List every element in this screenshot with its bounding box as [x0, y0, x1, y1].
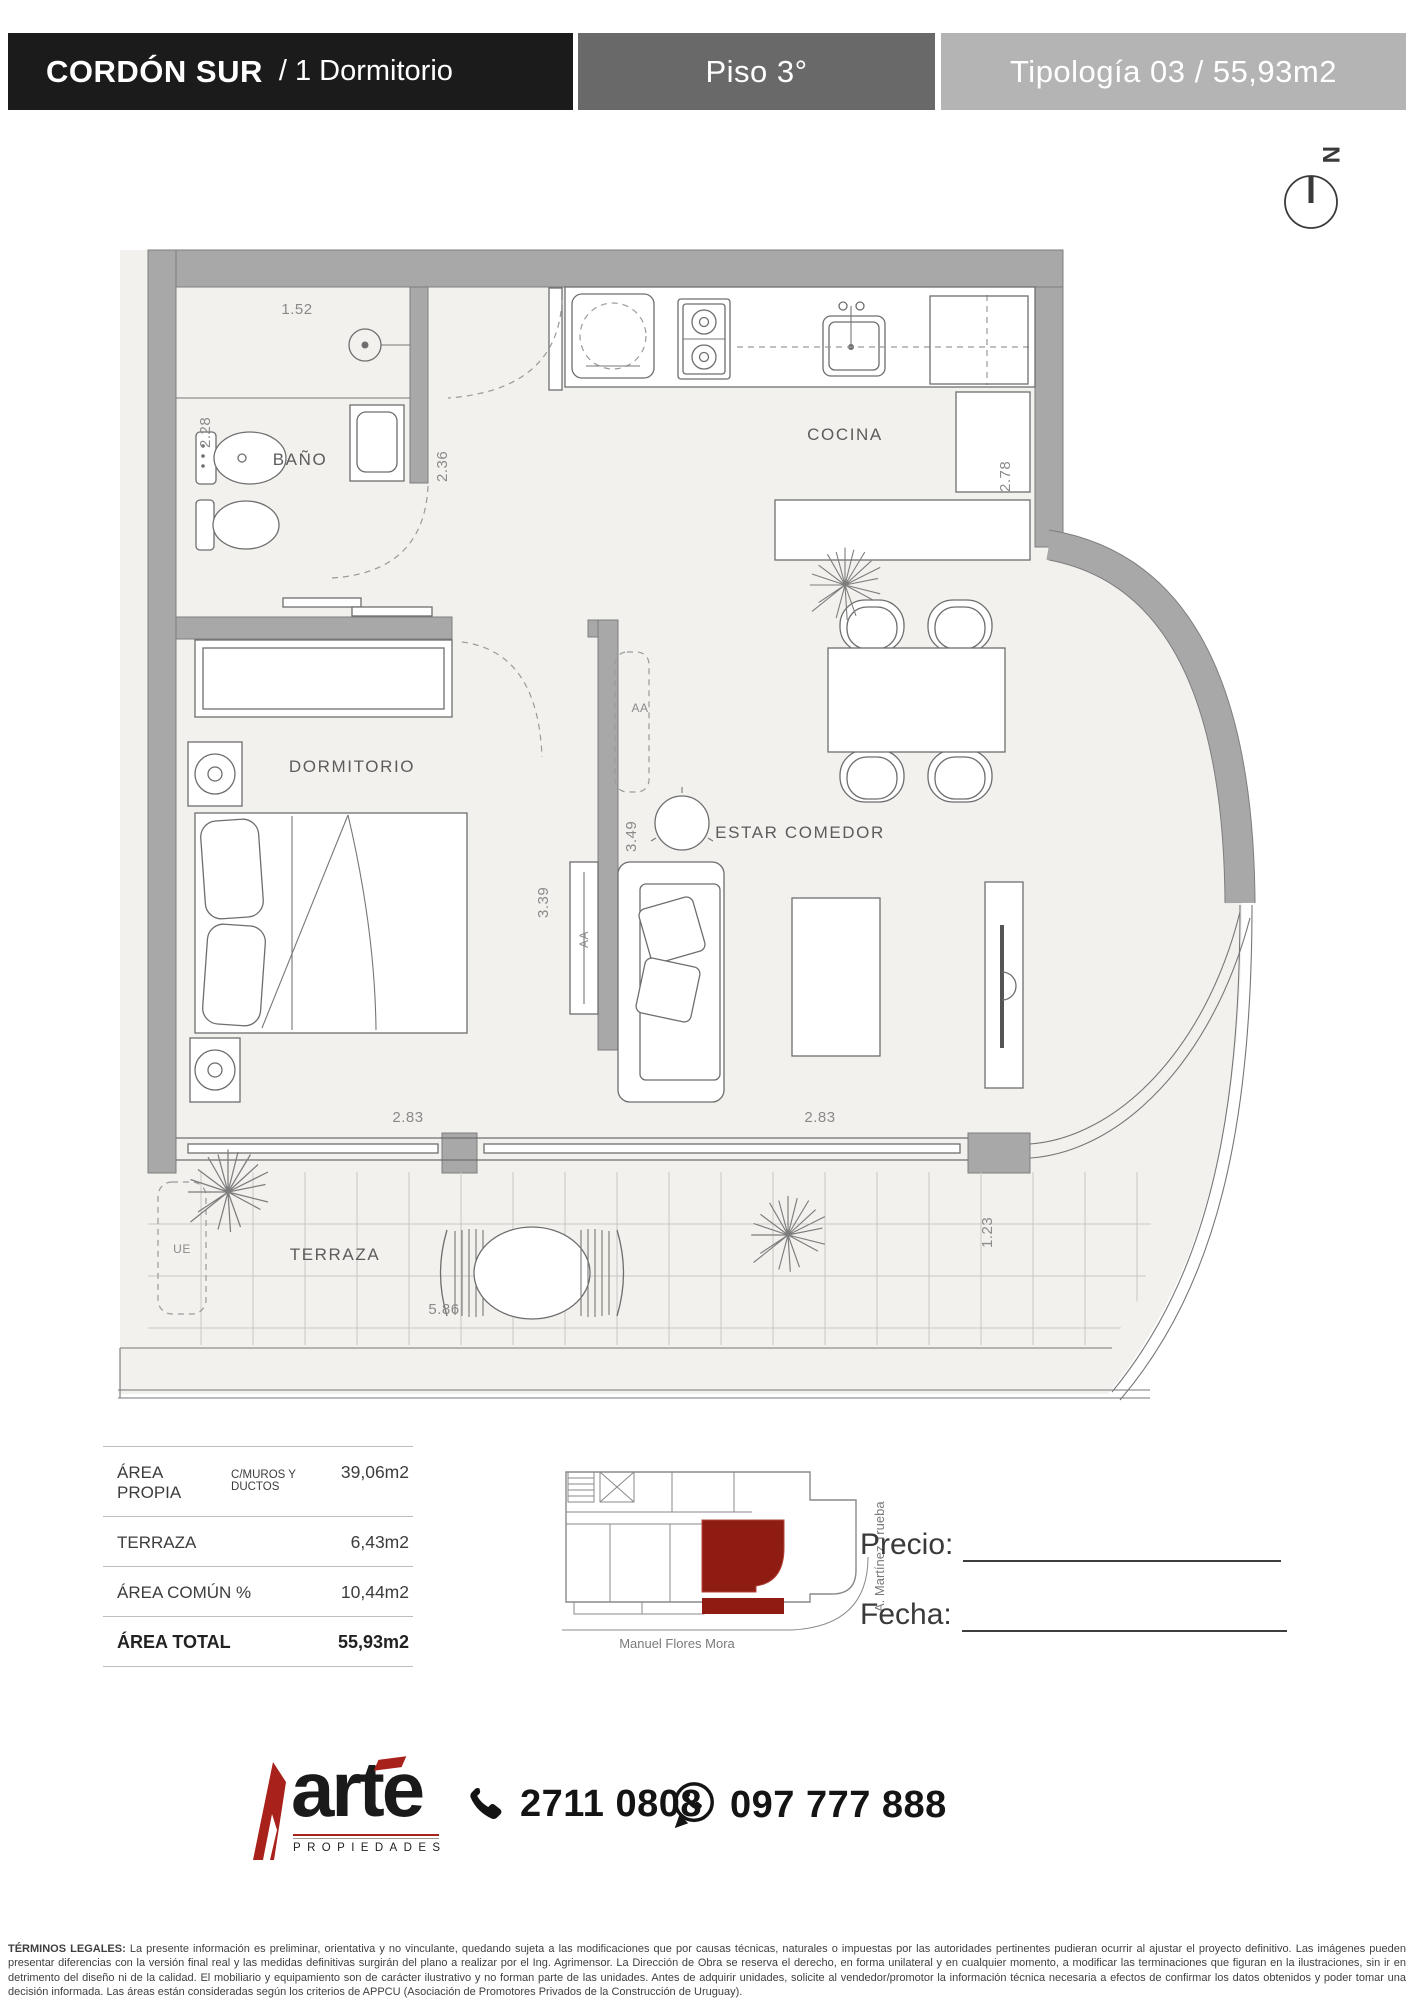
- area-label: ÁREA COMÚN %: [117, 1583, 251, 1603]
- dim-bath-depth: 2.28: [197, 417, 214, 448]
- whatsapp-icon: [668, 1778, 718, 1832]
- dim-living-width: 2.83: [804, 1109, 835, 1126]
- price-row: Precio:: [860, 1528, 1281, 1562]
- dim-kitchen-depth: 2.78: [997, 461, 1014, 492]
- location-map: Manuel Flores Mora A. Martínez Trueba: [552, 1452, 892, 1662]
- tv-unit-icon: [985, 882, 1023, 1088]
- washer-icon: [572, 294, 654, 378]
- side-table-icon: [655, 796, 709, 850]
- area-value: 10,44m2: [341, 1582, 409, 1603]
- phone-contact: 2711 0808: [468, 1782, 702, 1826]
- dim-hall-depth: 2.36: [434, 451, 451, 482]
- dim-terrace-width: 5.86: [428, 1301, 459, 1318]
- legal-body: La presente información es preliminar, o…: [8, 1943, 1406, 1998]
- area-value: 39,06m2: [341, 1462, 409, 1483]
- table-row: ÁREA COMÚN % 10,44m2: [103, 1567, 413, 1617]
- table-row: ÁREA PROPIA C/MUROS Y DUCTOS 39,06m2: [103, 1447, 413, 1517]
- nightstand-icon-2: [190, 1038, 240, 1102]
- whatsapp-number: 097 777 888: [730, 1784, 947, 1827]
- areas-table: ÁREA PROPIA C/MUROS Y DUCTOS 39,06m2 TER…: [103, 1446, 413, 1667]
- legal-terms: TÉRMINOS LEGALES: La presente informació…: [8, 1942, 1406, 1999]
- coffee-table-icon: [792, 898, 880, 1056]
- price-blank-line: [963, 1530, 1281, 1562]
- floor-plan: N: [0, 0, 1414, 1460]
- brand-logo: arte PROPIEDADES: [243, 1758, 473, 1868]
- north-letter: N: [1317, 146, 1344, 163]
- exterior-unit-label: UE: [173, 1242, 191, 1256]
- stove-icon: [678, 299, 730, 379]
- brand-subtitle: PROPIEDADES: [293, 1842, 446, 1854]
- north-arrow-icon: N: [1285, 146, 1344, 228]
- area-label: ÁREA PROPIA: [117, 1463, 225, 1503]
- area-value: 6,43m2: [351, 1532, 409, 1553]
- phone-icon: [468, 1782, 508, 1826]
- ac-label-living: AA: [631, 701, 648, 715]
- bed-icon: [195, 813, 467, 1033]
- date-blank-line: [962, 1600, 1287, 1632]
- brand-rule: [293, 1834, 439, 1839]
- room-label-bedroom: DORMITORIO: [289, 757, 415, 776]
- dining-table-icon: [828, 648, 1005, 752]
- whatsapp-contact: 097 777 888: [668, 1778, 947, 1832]
- ac-unit-bedroom: AA: [570, 862, 598, 1014]
- room-label-living: ESTAR COMEDOR: [715, 823, 885, 842]
- sofa-icon: [618, 862, 724, 1102]
- room-label-bath: BAÑO: [273, 450, 328, 469]
- dim-bedroom-width: 2.83: [392, 1109, 423, 1126]
- wardrobe-icon: [195, 640, 452, 717]
- area-sublabel: C/MUROS Y DUCTOS: [231, 1469, 341, 1493]
- dim-bedroom-depth: 3.39: [535, 887, 552, 918]
- room-label-kitchen: COCINA: [807, 425, 883, 444]
- dim-terrace-depth: 1.23: [979, 1217, 996, 1248]
- area-label: TERRAZA: [117, 1533, 196, 1553]
- table-row-total: ÁREA TOTAL 55,93m2: [103, 1617, 413, 1667]
- street-label-bottom: Manuel Flores Mora: [619, 1636, 735, 1651]
- area-total-label: ÁREA TOTAL: [117, 1632, 231, 1653]
- table-row: TERRAZA 6,43m2: [103, 1517, 413, 1567]
- brand-arrow-icon: [243, 1758, 289, 1862]
- area-total-value: 55,93m2: [338, 1632, 409, 1653]
- nightstand-icon: [188, 742, 242, 806]
- map-unit-highlight: [702, 1520, 784, 1614]
- price-label: Precio:: [860, 1528, 953, 1561]
- sink-vanity-icon: [350, 405, 404, 481]
- date-row: Fecha:: [860, 1598, 1287, 1632]
- flyer-page: CORDÓN SUR / 1 Dormitorio Piso 3° Tipolo…: [0, 0, 1414, 2000]
- legal-title: TÉRMINOS LEGALES:: [8, 1943, 126, 1955]
- room-label-terrace: TERRAZA: [290, 1245, 381, 1264]
- date-label: Fecha:: [860, 1598, 952, 1631]
- toilet-icon: [196, 500, 279, 550]
- ac-label-bedroom: AA: [577, 931, 591, 948]
- dim-bath-width: 1.52: [281, 301, 312, 318]
- dim-living-depth: 3.49: [623, 821, 640, 852]
